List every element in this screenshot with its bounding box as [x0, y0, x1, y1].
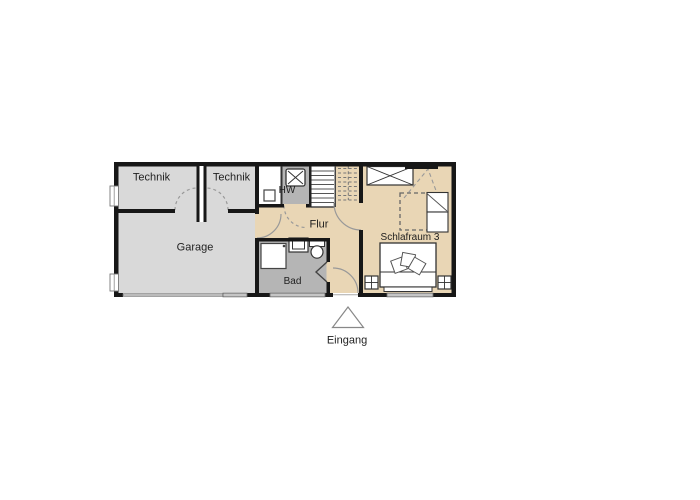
garage-door [123, 294, 223, 296]
wall-segment [358, 293, 387, 297]
wardrobe-icon [367, 167, 413, 186]
window-left-bottom [110, 274, 119, 291]
wall-lintel [405, 162, 438, 169]
nightstand-right-icon [438, 276, 451, 289]
floorplan-page: Technik Technik HW Flur Garage Bad Schla… [0, 0, 700, 500]
label-bad: Bad [284, 277, 302, 287]
wall-segment [359, 166, 363, 203]
closet-shaft-box [264, 190, 275, 201]
floorplan-drawing [0, 0, 700, 500]
floor-stairwell [311, 166, 335, 207]
shower-icon [261, 244, 286, 269]
washing-machine-icon [286, 169, 305, 186]
wall-segment [259, 204, 284, 208]
label-hw: HW [279, 186, 296, 196]
wall-segment [255, 238, 259, 293]
wall-segment [204, 166, 207, 222]
window-bad-bottom [270, 293, 325, 297]
wall-segment [433, 293, 456, 297]
wall-segment [247, 293, 270, 297]
label-garage: Garage [177, 243, 214, 254]
wall-segment [118, 209, 175, 213]
divider-slot [200, 166, 204, 222]
label-flur: Flur [310, 219, 329, 230]
label-eingang: Eingang [327, 335, 367, 346]
wall-segment [325, 293, 333, 297]
window-schlafraum-bottom [387, 293, 433, 297]
wall-segment [114, 162, 119, 186]
wall-segment [335, 166, 337, 207]
toilet-icon [310, 241, 325, 259]
window-garage-bottom [223, 293, 247, 297]
wall-segment [359, 230, 363, 293]
window-left-top [110, 186, 119, 206]
wall-segment [255, 238, 330, 242]
wall-segment [255, 166, 259, 214]
nightstand-left-icon [365, 276, 378, 289]
label-schlafraum: Schlafraum 3 [381, 233, 440, 243]
wall-segment [452, 162, 457, 297]
wall-segment [197, 166, 200, 222]
label-technik-right: Technik [213, 172, 250, 183]
wall-segment [114, 162, 456, 167]
bed-icon [380, 243, 436, 292]
wall-segment [327, 238, 331, 262]
label-technik-left: Technik [133, 172, 170, 183]
shelf-cabinet-icon [427, 193, 448, 233]
wall-segment [228, 209, 259, 213]
wall-segment [114, 206, 119, 274]
wall-segment [114, 293, 123, 297]
entrance-triangle-icon [333, 307, 364, 328]
wall-segment [327, 282, 331, 293]
wall-segment [309, 166, 312, 207]
